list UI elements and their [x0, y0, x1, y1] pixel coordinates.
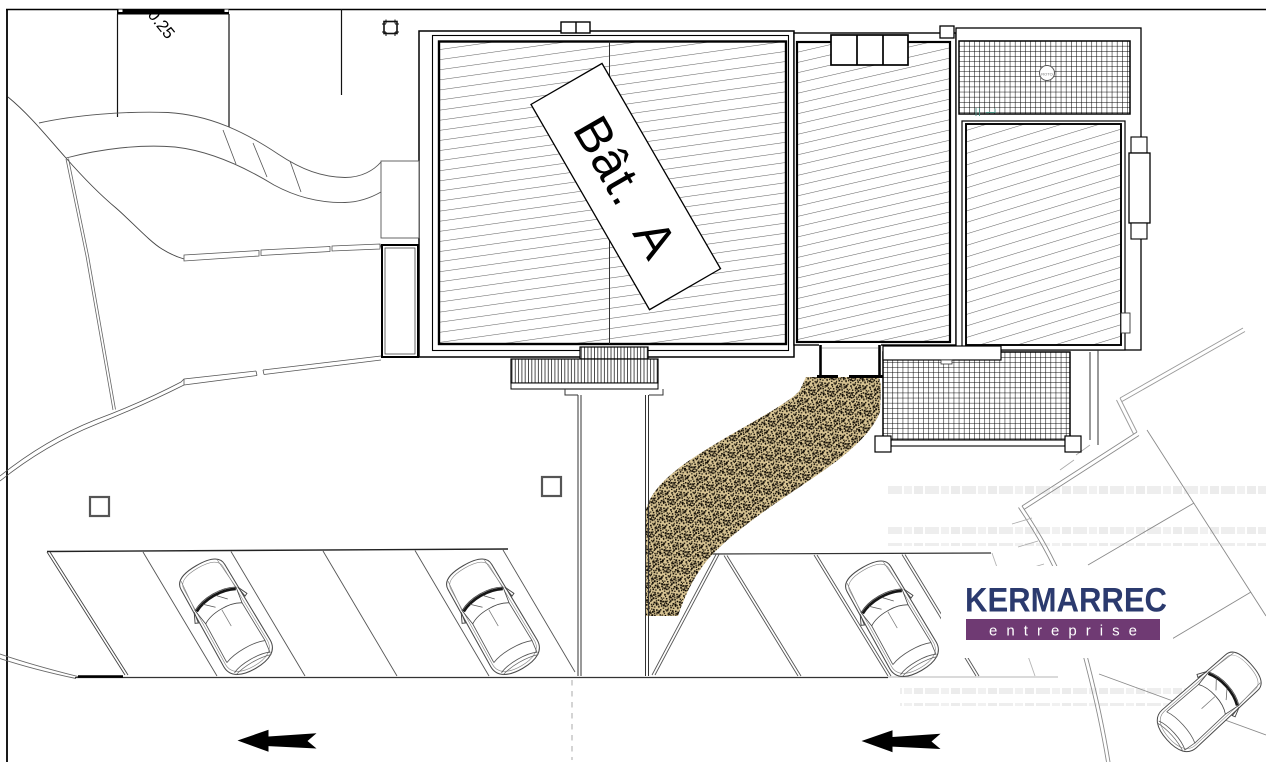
svg-text:ROTO: ROTO [1041, 72, 1052, 77]
svg-text:KERMARREC: KERMARREC [965, 582, 1167, 620]
